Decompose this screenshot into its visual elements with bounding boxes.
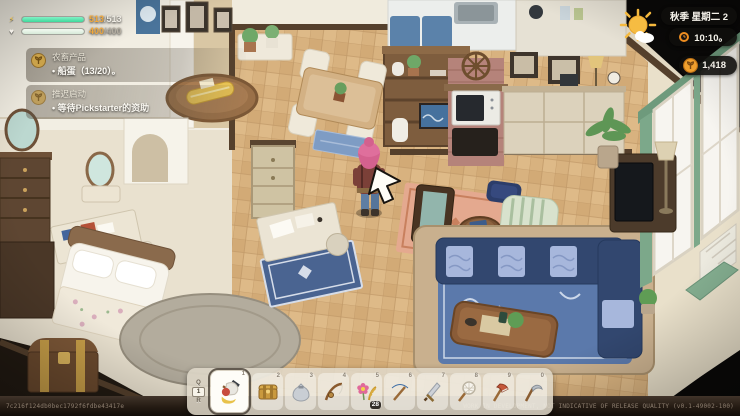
- season-day-badge: 秋季 星期二 2: [661, 7, 737, 25]
- hotbar-slot-8[interactable]: 8: [450, 373, 481, 410]
- time-badge: 10:10。: [669, 28, 737, 46]
- game-screen: ⚡ 513513 ♥ 400400 农畜产品 船蛋（13/20）。: [0, 0, 740, 416]
- coin-icon: [683, 58, 698, 73]
- build-hash: 7c216f124db0bec1792f6fdbe43417e: [6, 403, 124, 410]
- health-heart-icon: ♥: [6, 26, 17, 37]
- quest-item: 农畜产品 船蛋（13/20）。: [26, 48, 246, 82]
- slot-hotkey: 3: [310, 373, 313, 379]
- quest-tracker: 农畜产品 船蛋（13/20）。 推迟启动 等待Pickstarter的资助: [26, 48, 246, 122]
- energy-bar: ⚡ 513513: [6, 13, 122, 25]
- hotbar-slot-6[interactable]: 6: [384, 373, 415, 410]
- slot-hotkey: 7: [442, 373, 445, 379]
- pager-prev-key[interactable]: Q: [196, 380, 201, 386]
- clock-panel: 秋季 星期二 2 10:10。 1,418: [618, 7, 737, 75]
- quest-title: 推迟启动: [52, 88, 149, 100]
- hotbar-slot-10[interactable]: 0: [516, 373, 547, 410]
- scythe-icon: [520, 380, 544, 404]
- quest-item: 推迟启动 等待Pickstarter的资助: [26, 85, 246, 119]
- quest-objective: 船蛋（13/20）。: [52, 64, 121, 77]
- gray-pouch-icon: [289, 380, 313, 404]
- hotbar-slot-1[interactable]: 1: [211, 371, 248, 412]
- stat-bars: ⚡ 513513 ♥ 400400: [6, 13, 122, 37]
- hotbar-slot-2[interactable]: 2: [252, 373, 283, 410]
- fishing-rod-icon: [322, 380, 346, 404]
- golden-chest-icon: [256, 380, 280, 404]
- slot-hotkey: 4: [343, 373, 346, 379]
- axe-icon: [487, 380, 511, 404]
- quest-objective: 等待Pickstarter的资助: [52, 101, 149, 114]
- hotbar-slot-3[interactable]: 3: [285, 373, 316, 410]
- quest-title: 农畜产品: [52, 51, 121, 63]
- hotbar-pager[interactable]: Q 1 R: [191, 380, 206, 404]
- weather-sun-cloud-icon: [618, 7, 658, 47]
- health-value: 400400: [89, 26, 122, 36]
- sword-icon: [421, 380, 445, 404]
- time-text: 10:10。: [694, 30, 728, 44]
- clock-icon: [678, 31, 690, 43]
- pager-next-key[interactable]: R: [196, 398, 200, 404]
- currency-amount: 1,418: [702, 60, 726, 71]
- hotbar-slot-4[interactable]: 4: [318, 373, 349, 410]
- slot-hotkey: 5: [376, 373, 379, 379]
- hotbar-slots: 1 2 3: [209, 371, 547, 412]
- slot-hotkey: 8: [475, 373, 478, 379]
- quest-emblem-icon: [31, 53, 46, 68]
- flower-bundle-icon: [355, 380, 379, 404]
- slot-hotkey: 0: [541, 373, 544, 379]
- health-bar: ♥ 400400: [6, 25, 122, 37]
- energy-value: 513513: [89, 14, 122, 24]
- pickaxe-icon: [388, 380, 412, 404]
- slot-hotkey: 2: [277, 373, 280, 379]
- pager-page-number: 1: [192, 387, 205, 397]
- hotbar-slot-7[interactable]: 7: [417, 373, 448, 410]
- currency-badge: 1,418: [679, 56, 737, 75]
- hotbar-slot-5[interactable]: 5 28: [351, 373, 382, 410]
- slot-hotkey: 6: [409, 373, 412, 379]
- hotbar: Q 1 R 1 2: [187, 368, 553, 415]
- slot-count-badge: 28: [370, 401, 381, 409]
- quest-emblem-icon: [31, 90, 46, 105]
- energy-bolt-icon: ⚡: [6, 14, 17, 25]
- tool-bundle-icon: [216, 378, 244, 406]
- season-day-text: 秋季 星期二 2: [670, 9, 728, 23]
- slot-hotkey: 1: [242, 371, 245, 377]
- bug-net-icon: [454, 380, 478, 404]
- hotbar-slot-9[interactable]: 9: [483, 373, 514, 410]
- slot-hotkey: 9: [508, 373, 511, 379]
